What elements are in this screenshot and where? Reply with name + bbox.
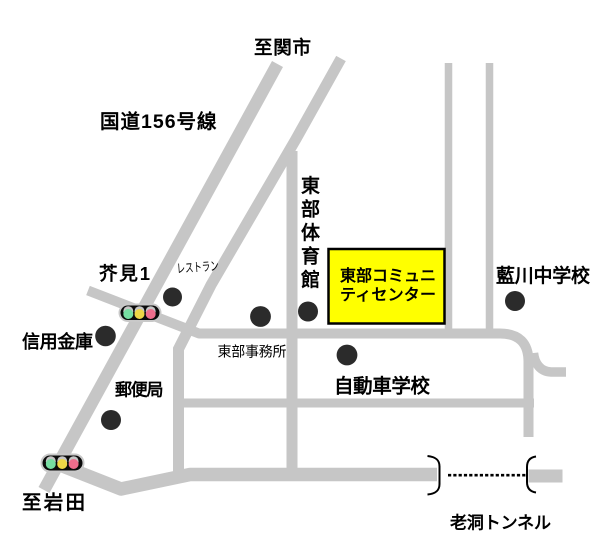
svg-text:部: 部 [301, 198, 320, 221]
svg-text:至関市: 至関市 [254, 37, 311, 58]
svg-text:東部コミュニ: 東部コミュニ [340, 266, 436, 285]
svg-text:国道156号線: 国道156号線 [100, 110, 218, 133]
svg-text:育: 育 [301, 245, 320, 268]
svg-text:藍川中学校: 藍川中学校 [496, 264, 591, 287]
svg-text:自動車学校: 自動車学校 [334, 375, 430, 398]
svg-text:老洞トンネル: 老洞トンネル [449, 513, 551, 533]
svg-text:信用金庫: 信用金庫 [22, 331, 93, 352]
svg-text:東部事務所: 東部事務所 [218, 344, 287, 360]
svg-text:東: 東 [301, 174, 320, 197]
svg-text:体: 体 [301, 221, 321, 244]
svg-text:芥見1: 芥見1 [99, 263, 150, 284]
svg-text:館: 館 [301, 268, 320, 291]
svg-text:至岩田: 至岩田 [22, 491, 85, 514]
svg-text:ティセンター: ティセンター [340, 286, 436, 304]
svg-text:郵便局: 郵便局 [115, 380, 164, 400]
svg-text:レストラン: レストラン [176, 259, 219, 276]
